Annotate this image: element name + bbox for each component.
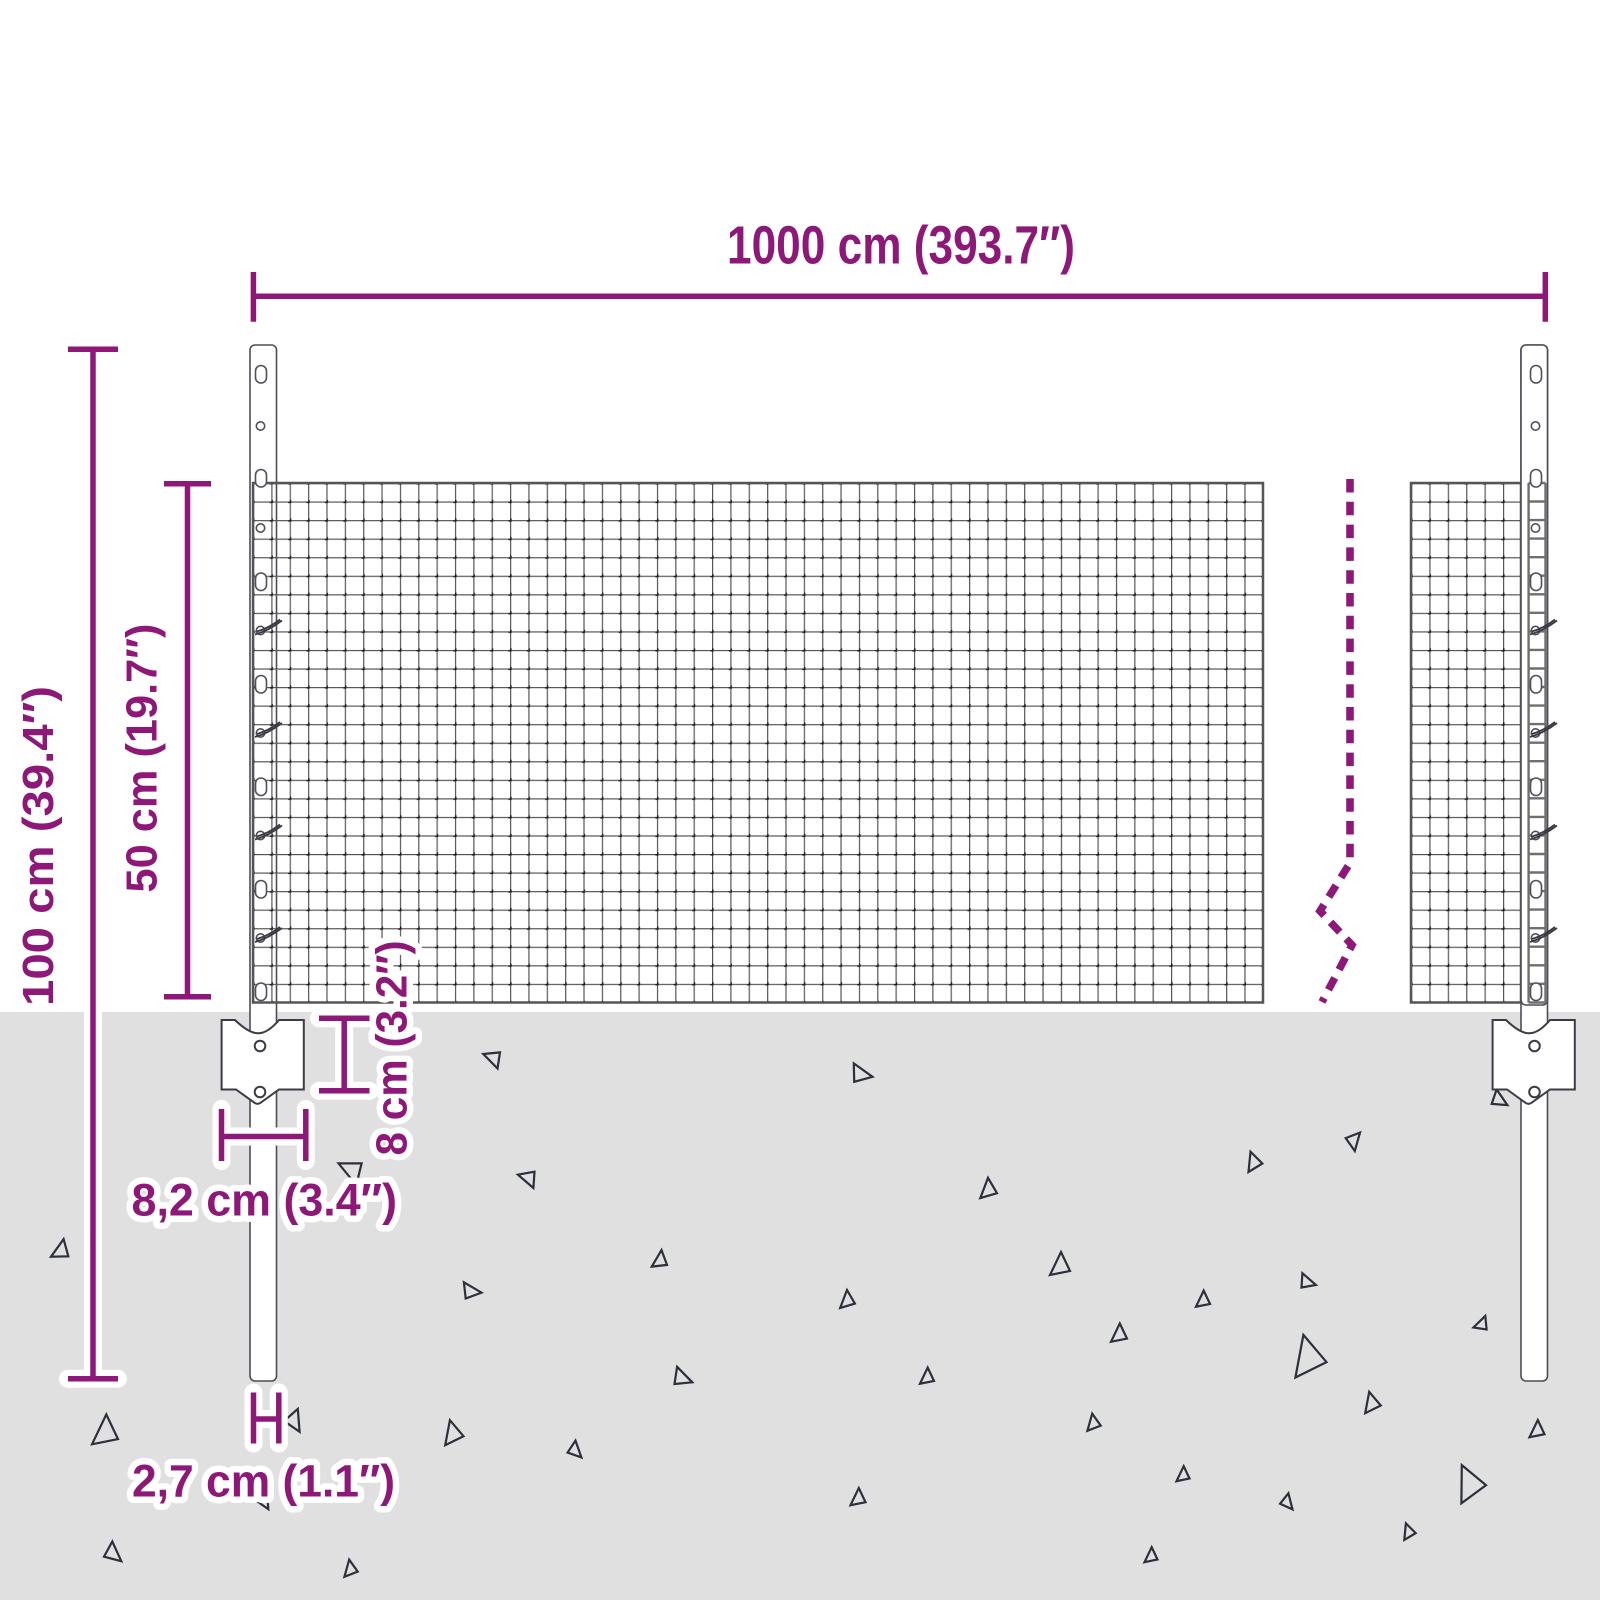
svg-text:8 cm (3.2″): 8 cm (3.2″)	[368, 941, 417, 1156]
svg-text:50 cm (19.7″): 50 cm (19.7″)	[118, 624, 167, 893]
svg-text:8,2 cm (3.4″): 8,2 cm (3.4″)	[132, 1174, 398, 1225]
svg-text:100 cm (39.4″): 100 cm (39.4″)	[14, 686, 63, 1006]
svg-text:1000 cm (393.7″): 1000 cm (393.7″)	[727, 216, 1075, 276]
svg-text:2,7 cm (1.1″): 2,7 cm (1.1″)	[132, 1456, 395, 1507]
